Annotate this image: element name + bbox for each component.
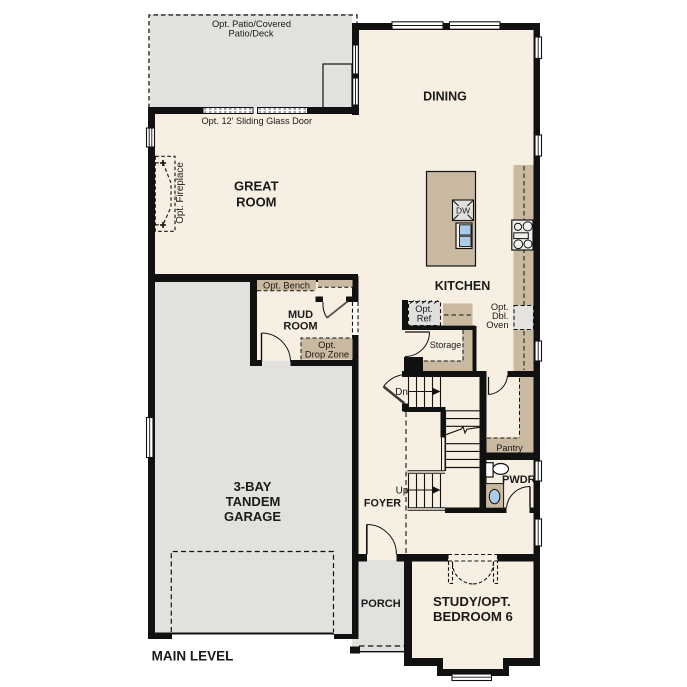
- svg-text:Opt. Bench: Opt. Bench: [263, 280, 310, 291]
- svg-text:Opt. 12' Sliding Glass Door: Opt. 12' Sliding Glass Door: [202, 116, 313, 126]
- svg-text:Up: Up: [396, 485, 409, 496]
- svg-text:PWDR: PWDR: [502, 474, 536, 486]
- svg-text:Oven: Oven: [486, 320, 508, 330]
- svg-text:MAIN LEVEL: MAIN LEVEL: [152, 649, 234, 664]
- svg-text:Drop Zone: Drop Zone: [305, 349, 349, 360]
- svg-text:TANDEM: TANDEM: [226, 494, 281, 509]
- svg-text:FOYER: FOYER: [364, 498, 401, 510]
- svg-text:Opt. Fireplace: Opt. Fireplace: [175, 162, 186, 224]
- svg-text:GARAGE: GARAGE: [224, 509, 281, 524]
- svg-text:ROOM: ROOM: [283, 321, 317, 333]
- svg-text:3-BAY: 3-BAY: [234, 479, 272, 494]
- svg-text:DW: DW: [456, 206, 470, 216]
- svg-text:BEDROOM 6: BEDROOM 6: [433, 609, 513, 624]
- svg-text:PORCH: PORCH: [361, 598, 401, 610]
- svg-text:KITCHEN: KITCHEN: [435, 279, 491, 293]
- svg-text:Patio/Deck: Patio/Deck: [229, 28, 274, 38]
- svg-text:Storage: Storage: [430, 340, 462, 350]
- svg-text:GREAT: GREAT: [234, 179, 279, 194]
- svg-text:DINING: DINING: [423, 90, 467, 104]
- svg-text:ROOM: ROOM: [236, 195, 276, 210]
- svg-text:STUDY/OPT.: STUDY/OPT.: [433, 594, 511, 609]
- svg-text:Dn: Dn: [395, 387, 408, 398]
- svg-text:Pantry: Pantry: [496, 443, 523, 453]
- svg-text:MUD: MUD: [288, 309, 313, 321]
- svg-text:Ref: Ref: [417, 313, 432, 323]
